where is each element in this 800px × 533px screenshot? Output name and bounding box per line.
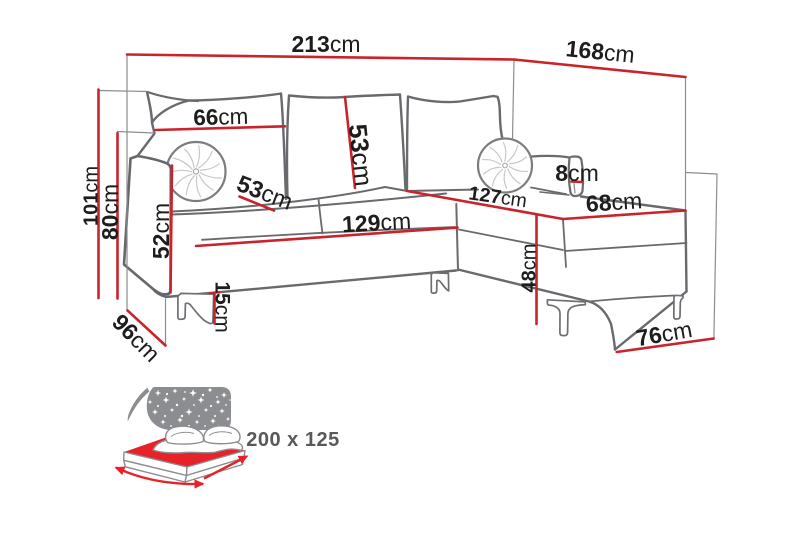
svg-text:66cm: 66cm <box>193 104 249 130</box>
svg-text:52cm: 52cm <box>148 203 174 259</box>
svg-text:68cm: 68cm <box>585 187 643 217</box>
svg-text:200 x 125: 200 x 125 <box>246 429 339 451</box>
svg-text:15cm: 15cm <box>211 281 234 332</box>
svg-text:213cm: 213cm <box>291 31 360 57</box>
svg-text:80cm: 80cm <box>97 184 123 240</box>
svg-text:48cm: 48cm <box>519 244 541 293</box>
svg-text:129cm: 129cm <box>341 208 411 238</box>
svg-text:8cm: 8cm <box>555 160 598 186</box>
